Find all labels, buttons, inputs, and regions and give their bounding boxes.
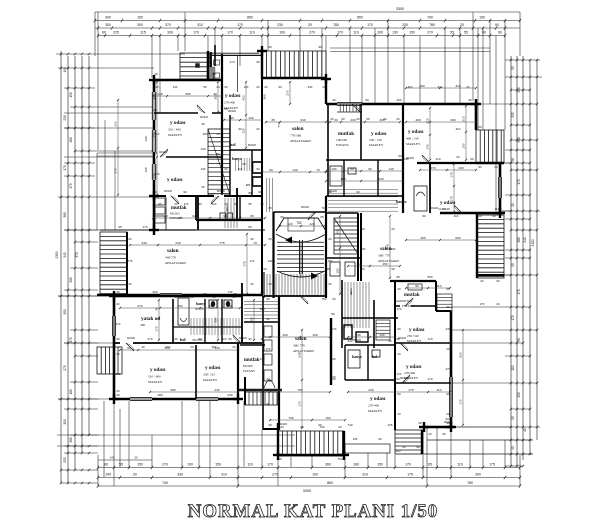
svg-text:70: 70 [253,241,257,245]
svg-text:360: 360 [263,94,267,99]
svg-text:360: 360 [517,137,521,143]
svg-text:banyo: banyo [352,355,362,359]
svg-text:90: 90 [378,437,382,441]
svg-text:55: 55 [212,295,216,299]
svg-text:y odası: y odası [150,367,166,373]
svg-text:380: 380 [517,237,521,243]
svg-text:90/220: 90/220 [127,336,135,340]
svg-text:310: 310 [166,345,171,349]
svg-text:60: 60 [102,31,106,35]
svg-text:80: 80 [248,191,252,195]
svg-text:860: 860 [327,481,333,485]
svg-text:55: 55 [209,304,213,308]
svg-text:230: 230 [63,115,67,121]
svg-text:740: 740 [162,481,168,485]
svg-text:150: 150 [336,268,340,273]
svg-text:80/220: 80/220 [394,299,402,303]
svg-text:230: 230 [214,388,219,392]
svg-text:20: 20 [128,237,132,241]
svg-text:90: 90 [183,190,187,194]
svg-text:020: 020 [192,214,197,218]
svg-text:270: 270 [137,304,142,308]
svg-text:270: 270 [427,31,433,35]
svg-text:135: 135 [353,437,358,441]
svg-text:20: 20 [356,117,360,121]
svg-text:20: 20 [332,98,336,102]
svg-text:90: 90 [266,297,270,301]
svg-text:FAYANS: FAYANS [336,143,349,147]
svg-text:230: 230 [402,23,408,27]
svg-text:70: 70 [316,168,320,172]
svg-text:45: 45 [229,304,233,308]
svg-text:140: 140 [388,167,393,171]
svg-text:230: 230 [368,388,373,392]
svg-text:120: 120 [248,116,253,120]
svg-text:360/ 770: 360/ 770 [378,254,390,258]
svg-text:360: 360 [185,92,190,96]
svg-text:240: 240 [523,237,527,243]
svg-text:170: 170 [142,225,147,229]
svg-text:550: 550 [427,275,432,279]
svg-text:90: 90 [398,154,402,158]
svg-text:115: 115 [140,31,146,35]
svg-text:y odası: y odası [167,177,183,183]
svg-text:775: 775 [386,244,390,249]
svg-text:20: 20 [397,287,401,291]
svg-text:315: 315 [517,87,521,93]
svg-text:90: 90 [361,227,365,231]
svg-text:390: 390 [214,317,218,322]
svg-text:340: 340 [153,94,157,99]
svg-text:05: 05 [268,237,272,241]
svg-text:hol: hol [180,337,186,342]
svg-text:20: 20 [116,393,120,397]
svg-text:270: 270 [309,31,315,35]
svg-text:90: 90 [383,117,387,121]
svg-text:400 / 310: 400 / 310 [406,137,419,141]
svg-text:MARLEY: MARLEY [368,409,383,413]
svg-text:90: 90 [300,425,304,429]
svg-text:140: 140 [157,92,162,96]
svg-text:20: 20 [478,214,482,218]
svg-text:400: 400 [396,98,401,102]
svg-text:05: 05 [201,185,205,189]
svg-text:95: 95 [326,267,330,271]
svg-text:mutfak: mutfak [338,131,354,137]
svg-text:20: 20 [446,412,450,416]
svg-text:180: 180 [259,307,264,311]
svg-text:170: 170 [337,31,343,35]
svg-text:400: 400 [419,84,424,88]
svg-text:160/265: 160/265 [336,138,347,142]
svg-text:90: 90 [415,284,419,288]
svg-text:80/260: 80/260 [243,364,253,368]
svg-text:270/400: 270/400 [224,101,235,105]
svg-text:340: 340 [141,241,146,245]
svg-text:20: 20 [141,345,145,349]
svg-text:175: 175 [69,183,73,189]
svg-text:150: 150 [382,262,387,266]
svg-text:780: 780 [429,23,435,27]
svg-text:150: 150 [409,31,415,35]
svg-text:310: 310 [221,473,227,477]
svg-text:55: 55 [203,292,207,296]
svg-text:140: 140 [268,259,273,263]
svg-text:480: 480 [170,388,175,392]
svg-text:3100: 3100 [531,239,535,246]
svg-text:170: 170 [517,179,521,185]
svg-text:90: 90 [511,416,515,420]
svg-text:90: 90 [278,85,282,89]
svg-text:270: 270 [286,90,290,95]
svg-text:20: 20 [260,290,264,294]
svg-text:270: 270 [272,473,278,477]
svg-text:90: 90 [228,337,232,341]
svg-text:752: 752 [296,221,302,225]
svg-text:20: 20 [250,282,254,286]
svg-text:20: 20 [256,85,260,89]
svg-text:55: 55 [511,66,515,70]
svg-text:270: 270 [446,367,451,371]
svg-text:340: 340 [300,118,305,122]
svg-text:110: 110 [222,337,227,341]
svg-text:270/400: 270/400 [404,371,415,375]
svg-text:90: 90 [446,305,450,309]
svg-text:310: 310 [114,121,118,126]
svg-text:95: 95 [396,275,400,279]
svg-text:90: 90 [397,392,401,396]
svg-text:20: 20 [322,85,326,89]
svg-text:175: 175 [450,172,454,177]
svg-text:750: 750 [321,297,326,301]
svg-text:20: 20 [511,203,515,207]
svg-text:90: 90 [158,202,162,206]
svg-text:90: 90 [368,167,372,171]
svg-text:AHŞAP PARKE: AHŞAP PARKE [378,259,399,263]
svg-text:760: 760 [288,416,293,420]
svg-text:90: 90 [391,267,395,271]
svg-text:95: 95 [248,225,252,229]
svg-text:600: 600 [455,236,460,240]
svg-text:110: 110 [457,463,463,467]
svg-text:170: 170 [459,399,463,404]
svg-text:MARLEY: MARLEY [406,142,421,146]
svg-text:210: 210 [426,118,430,123]
svg-text:410: 410 [454,214,459,218]
svg-text:150: 150 [69,92,73,98]
svg-text:310: 310 [456,127,461,131]
svg-text:330: 330 [167,31,173,35]
svg-text:190: 190 [144,136,148,141]
svg-text:175: 175 [489,463,495,467]
svg-text:90: 90 [388,339,392,343]
svg-text:400: 400 [242,95,246,100]
svg-text:20: 20 [391,227,395,231]
svg-text:790: 790 [427,16,433,20]
svg-text:343: 343 [347,339,352,343]
svg-text:170: 170 [69,337,73,343]
svg-text:30: 30 [334,118,338,122]
svg-text:230: 230 [378,177,383,181]
svg-text:65: 65 [428,463,432,467]
svg-text:170: 170 [250,259,255,263]
svg-text:20: 20 [494,165,498,169]
svg-text:190: 190 [144,167,148,172]
svg-text:360: 360 [391,247,396,251]
svg-text:160: 160 [353,463,359,467]
svg-text:60: 60 [116,337,120,341]
svg-text:310: 310 [155,132,160,136]
svg-text:salon: salon [167,248,179,254]
svg-text:180: 180 [69,137,73,143]
svg-text:300: 300 [63,309,67,315]
svg-text:90: 90 [256,167,260,171]
svg-text:775: 775 [243,261,247,266]
svg-text:370: 370 [165,23,171,27]
svg-text:hol: hol [372,355,377,359]
svg-text:20: 20 [466,85,470,89]
svg-text:150: 150 [282,333,287,337]
svg-text:400: 400 [420,236,425,240]
svg-text:170: 170 [63,165,67,171]
svg-text:55: 55 [450,31,454,35]
svg-text:30: 30 [260,337,264,341]
svg-text:20: 20 [330,117,334,121]
svg-text:150: 150 [312,333,317,337]
svg-text:90: 90 [250,237,254,241]
svg-text:20: 20 [134,456,138,460]
svg-text:90: 90 [365,98,369,102]
svg-text:55: 55 [119,463,123,467]
svg-text:230: 230 [458,166,463,170]
svg-text:20: 20 [190,295,194,299]
svg-text:mutfak: mutfak [404,293,420,298]
svg-text:20: 20 [496,302,500,306]
svg-text:270: 270 [147,337,152,341]
svg-text:130: 130 [392,31,398,35]
svg-text:80/220: 80/220 [329,189,337,193]
svg-text:230 /310: 230 /310 [407,334,419,338]
svg-text:90: 90 [224,167,228,171]
svg-text:70: 70 [321,206,325,210]
svg-text:170: 170 [155,172,160,176]
svg-text:90: 90 [511,263,515,267]
svg-text:140: 140 [426,144,430,149]
svg-text:90: 90 [223,214,227,218]
svg-text:120: 120 [379,333,384,337]
svg-text:y odası: y odası [370,396,386,402]
svg-text:240: 240 [63,252,67,258]
svg-text:300: 300 [105,23,111,27]
svg-text:y odası: y odası [408,129,424,135]
svg-text:80/220: 80/220 [217,189,225,193]
svg-text:90: 90 [198,337,202,341]
svg-text:240: 240 [175,241,180,245]
svg-text:370: 370 [75,252,79,258]
svg-text:170: 170 [229,60,234,64]
svg-text:90/220: 90/220 [430,206,438,210]
svg-text:90: 90 [446,287,450,291]
svg-text:150: 150 [328,259,333,263]
svg-text:260: 260 [250,317,254,322]
svg-text:MARLEY: MARLEY [407,339,422,343]
svg-text:AHŞAP PARKE: AHŞAP PARKE [165,261,186,265]
svg-text:100: 100 [462,143,466,148]
svg-text:100: 100 [312,473,318,477]
svg-text:mutfak: mutfak [171,206,187,211]
svg-text:y odası: y odası [409,327,425,333]
svg-text:150: 150 [377,463,383,467]
svg-text:y odası: y odası [406,364,422,370]
svg-text:480: 480 [157,393,162,397]
svg-text:90/220: 90/220 [279,422,287,426]
svg-text:110: 110 [511,365,515,370]
svg-text:150: 150 [137,16,143,20]
svg-text:110: 110 [437,388,442,392]
svg-text:300: 300 [450,118,455,122]
svg-text:90: 90 [318,45,322,49]
svg-text:20: 20 [116,290,120,294]
svg-text:20: 20 [456,102,460,106]
svg-text:20: 20 [480,279,484,283]
svg-text:770/360: 770/360 [290,134,301,138]
svg-text:190: 190 [279,31,285,35]
svg-text:20: 20 [460,23,464,27]
svg-text:90: 90 [496,279,500,283]
svg-text:56: 56 [511,158,515,162]
svg-text:95: 95 [331,312,335,316]
svg-text:90/220: 90/220 [301,205,309,209]
svg-text:740: 740 [347,423,352,427]
svg-text:20: 20 [174,337,178,341]
svg-text:90/220: 90/220 [164,189,172,193]
svg-text:05: 05 [242,162,246,166]
svg-text:80/220: 80/220 [248,143,256,147]
svg-text:315: 315 [511,112,515,118]
svg-text:110: 110 [238,167,243,171]
svg-text:90/265: 90/265 [170,212,180,216]
svg-text:710: 710 [427,337,432,341]
svg-text:170: 170 [397,372,402,376]
svg-text:160: 160 [325,416,330,420]
svg-text:05: 05 [320,215,324,219]
svg-text:120: 120 [309,222,314,226]
svg-text:FAYANS: FAYANS [243,369,255,373]
svg-text:330/ 315: 330/ 315 [203,373,215,377]
svg-text:310: 310 [362,473,368,477]
svg-text:90: 90 [446,392,450,396]
svg-text:20: 20 [266,377,270,381]
svg-text:170: 170 [480,302,485,306]
svg-text:90/220: 90/220 [200,115,208,119]
svg-text:AHŞAP PARKE: AHŞAP PARKE [290,139,311,143]
svg-text:90: 90 [266,402,270,406]
svg-text:90: 90 [212,72,216,76]
svg-text:AHŞAP PARKE: AHŞAP PARKE [293,349,314,353]
svg-text:20: 20 [153,108,157,112]
svg-text:740: 740 [320,425,325,429]
svg-text:hol: hol [230,142,236,147]
svg-text:400: 400 [152,290,157,294]
svg-text:380: 380 [63,212,67,218]
svg-text:90: 90 [269,168,273,172]
svg-text:80: 80 [104,463,108,467]
svg-text:170: 170 [266,347,271,351]
svg-text:20: 20 [128,282,132,286]
svg-text:300: 300 [214,94,218,99]
svg-text:20: 20 [397,352,401,356]
svg-text:310: 310 [438,85,443,89]
svg-text:325: 325 [63,457,67,463]
svg-text:110: 110 [247,463,253,467]
svg-text:170: 170 [397,307,402,311]
svg-text:20: 20 [116,302,120,306]
svg-text:20: 20 [216,132,220,136]
svg-text:90: 90 [155,307,159,311]
svg-text:310 / 400: 310 / 400 [148,375,161,379]
svg-text:270: 270 [430,166,435,170]
svg-text:775: 775 [128,259,133,263]
svg-text:90: 90 [230,116,234,120]
svg-text:230: 230 [350,118,355,122]
svg-text:400: 400 [408,85,413,89]
svg-text:20: 20 [456,155,460,159]
svg-text:95: 95 [250,214,254,218]
svg-text:300: 300 [475,473,481,477]
svg-text:175: 175 [450,196,454,201]
svg-text:20: 20 [116,389,120,393]
svg-text:400: 400 [203,132,208,136]
svg-text:850: 850 [247,16,253,20]
svg-text:110: 110 [249,31,255,35]
svg-text:90: 90 [258,190,262,194]
svg-text:30: 30 [468,98,472,102]
svg-text:170: 170 [427,377,432,381]
svg-text:170: 170 [367,23,373,27]
svg-text:120: 120 [287,222,292,226]
svg-text:110: 110 [357,262,362,266]
svg-text:20: 20 [402,445,406,449]
svg-text:230: 230 [227,393,232,397]
svg-text:310 / 400: 310 / 400 [168,128,181,132]
svg-text:55: 55 [203,85,207,89]
svg-text:300: 300 [137,23,143,27]
svg-text:170: 170 [511,315,515,321]
svg-text:90/220: 90/220 [406,156,414,160]
svg-text:salon: salon [292,126,304,132]
svg-text:90: 90 [256,60,260,64]
svg-text:55: 55 [248,202,252,206]
svg-text:170: 170 [116,322,121,326]
svg-text:3300: 3300 [303,489,311,493]
svg-text:MARLEY: MARLEY [168,133,183,137]
svg-text:230: 230 [277,23,283,27]
svg-text:170: 170 [237,23,243,27]
svg-text:150: 150 [137,463,143,467]
svg-text:170: 170 [184,202,189,206]
svg-text:20: 20 [328,237,332,241]
svg-text:20: 20 [133,473,137,477]
svg-text:140: 140 [292,168,297,172]
svg-text:90: 90 [268,45,272,49]
svg-text:MARLEY: MARLEY [369,143,384,147]
svg-text:130: 130 [517,392,521,398]
svg-text:330: 330 [177,473,183,477]
svg-text:MARLEY: MARLEY [148,380,163,384]
svg-text:150: 150 [361,247,366,251]
svg-text:antre: antre [349,288,353,295]
svg-text:270/400: 270/400 [368,404,379,408]
